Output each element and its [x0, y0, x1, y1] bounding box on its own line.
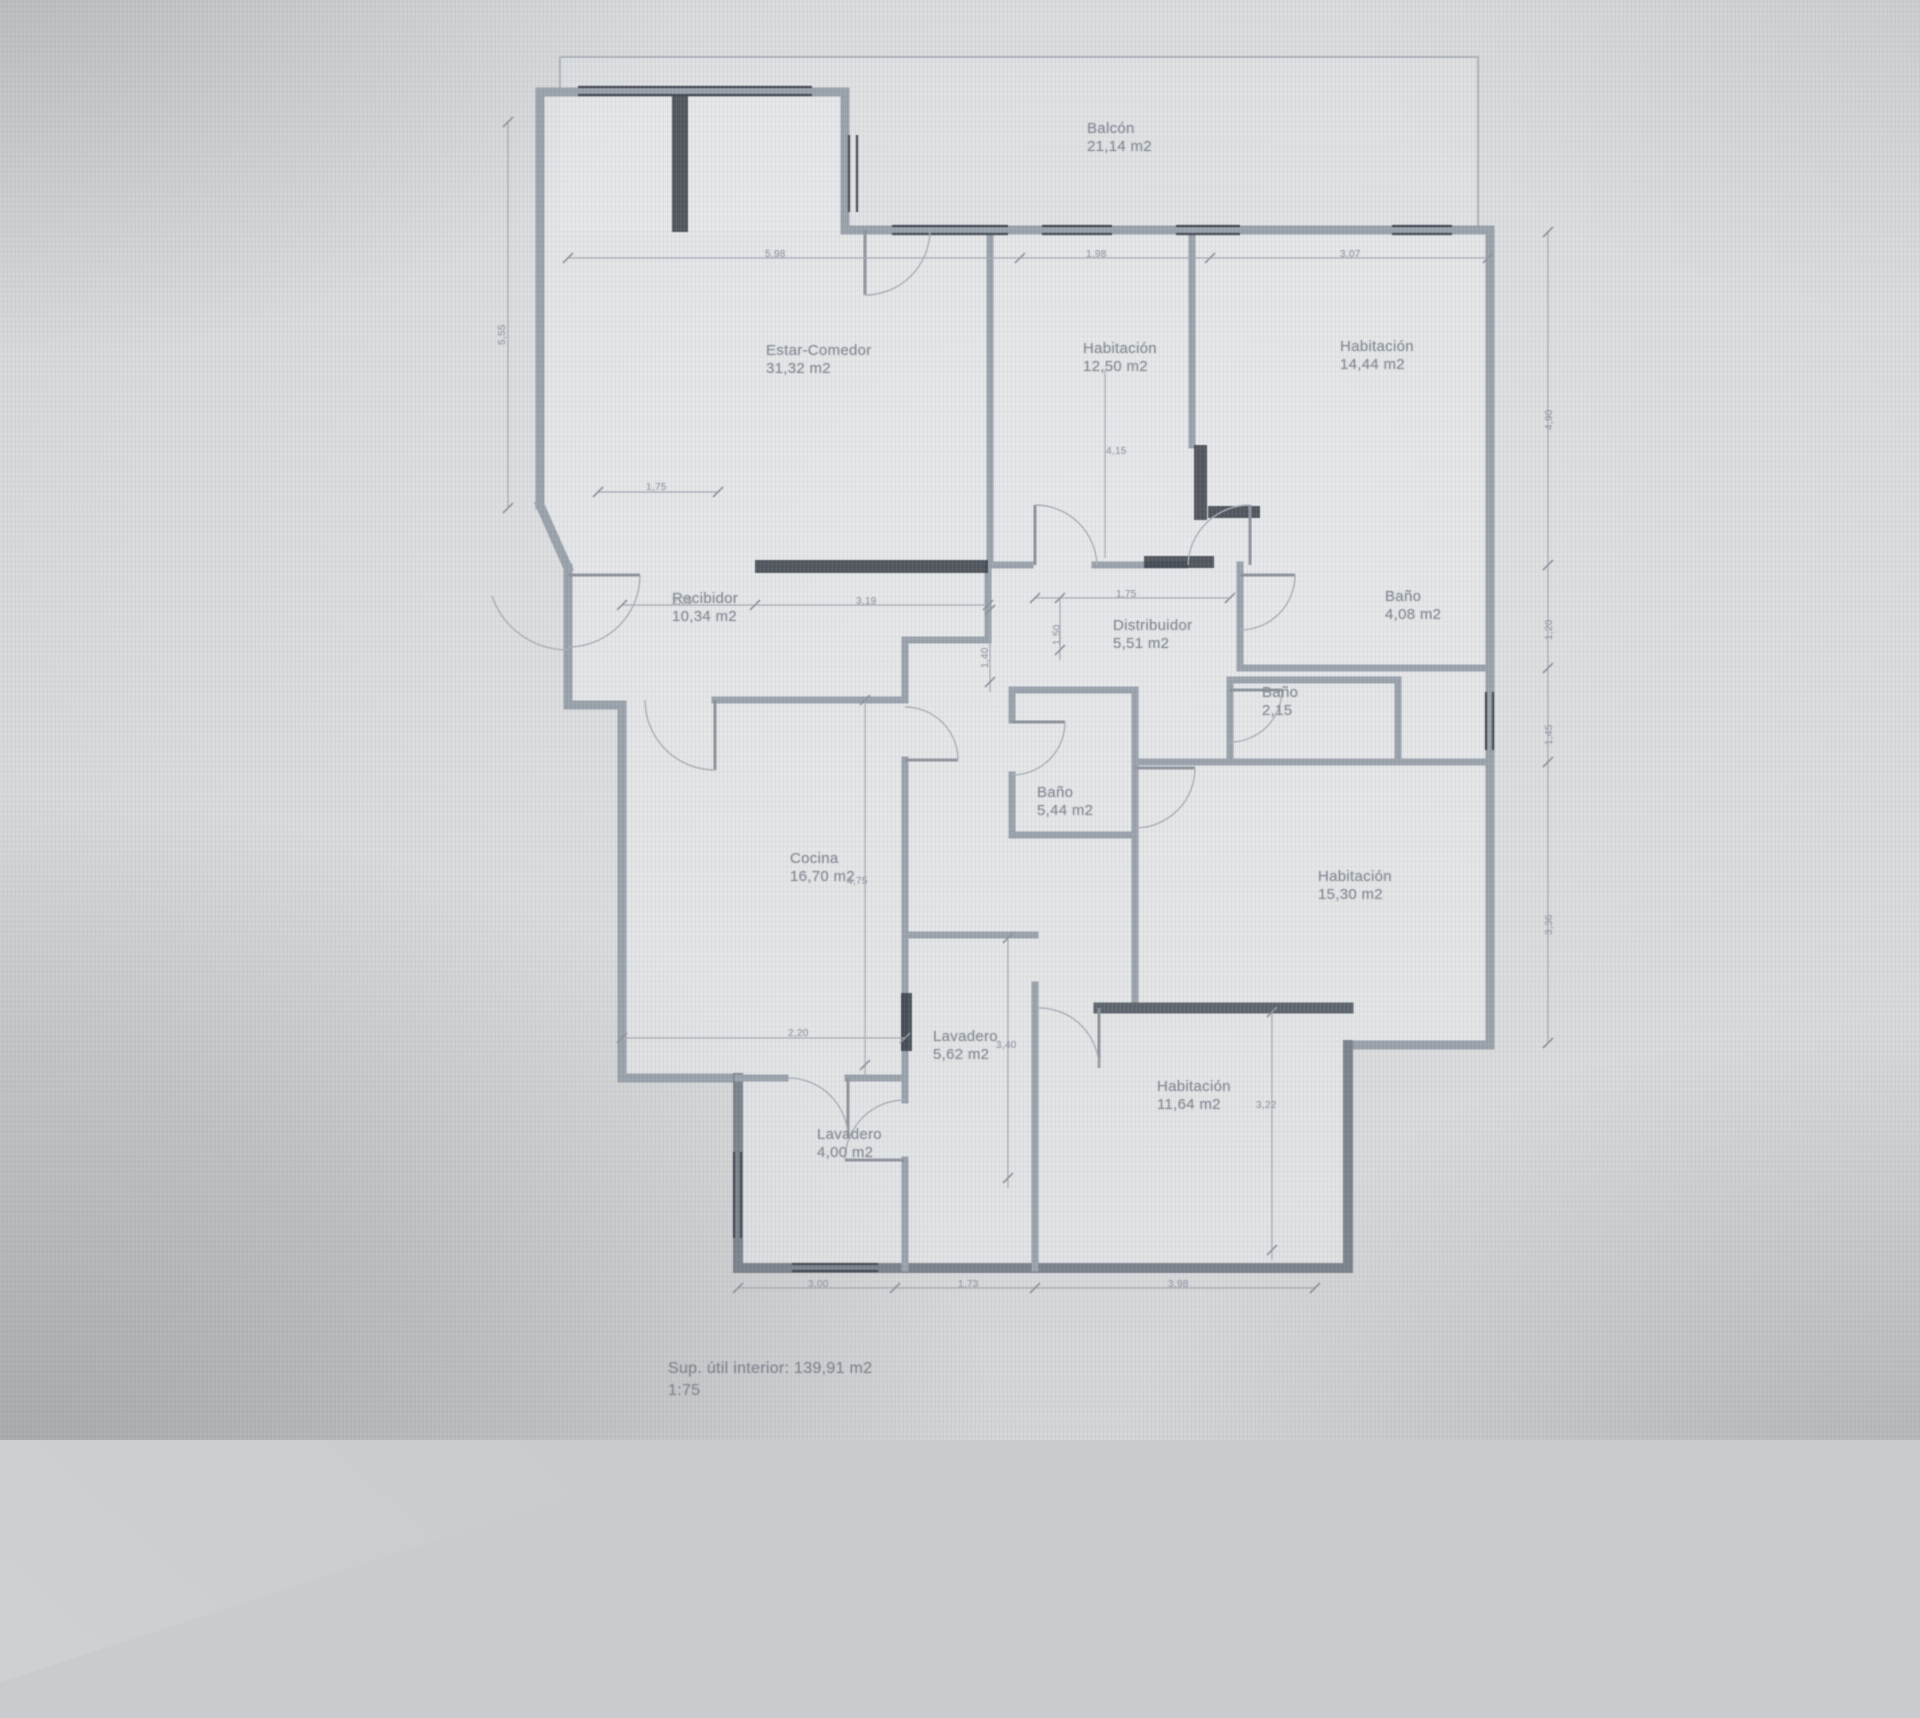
- dim-top-1: 5,98: [765, 249, 786, 260]
- room-label-lavadero-2: Lavadero 4,00 m2: [817, 1126, 882, 1163]
- screen-photo: Balcón 21,14 m2 Estar-Comedor 31,32 m2 H…: [0, 0, 1920, 1440]
- room-name: Baño: [1385, 588, 1421, 605]
- room-label-distribuidor: Distribuidor 5,51 m2: [1113, 617, 1192, 654]
- room-area: 15,30 m2: [1318, 886, 1392, 904]
- scale-label: 1:75: [668, 1380, 872, 1402]
- dim-bottom-3: 3,98: [1168, 1279, 1189, 1290]
- room-area: 5,44 m2: [1037, 802, 1093, 820]
- dim-top-3: 3,07: [1340, 249, 1361, 260]
- room-name: Balcón: [1087, 120, 1135, 137]
- room-area: 4,00 m2: [817, 1144, 882, 1162]
- room-label-habitacion-1: Habitación 12,50 m2: [1083, 340, 1157, 377]
- room-area: 2,15: [1262, 702, 1298, 720]
- dim-right-2: 1,20: [1544, 619, 1555, 640]
- room-area: 5,62 m2: [933, 1046, 998, 1064]
- dim-inner-8: 2,20: [788, 1028, 809, 1039]
- dim-right-4: 3,36: [1544, 914, 1555, 935]
- room-area: 31,32 m2: [766, 360, 872, 378]
- room-label-habitacion-4: Habitación 11,64 m2: [1157, 1078, 1231, 1115]
- dim-inner-5: 1,40: [980, 647, 991, 668]
- room-name: Distribuidor: [1113, 617, 1192, 634]
- dim-bottom-2: 1,73: [958, 1279, 979, 1290]
- floor-plan-drawing: [0, 0, 1920, 1440]
- room-name: Estar-Comedor: [766, 342, 872, 359]
- room-label-bano-3: Baño 5,44 m2: [1037, 784, 1093, 821]
- dim-bottom-1: 3,00: [808, 1279, 829, 1290]
- room-name: Baño: [1262, 684, 1298, 701]
- dim-inner-11: 4,15: [1106, 446, 1127, 457]
- dim-top-2: 1,98: [1086, 249, 1107, 260]
- dim-inner-9: 3,40: [996, 1040, 1017, 1051]
- room-label-habitacion-3: Habitación 15,30 m2: [1318, 868, 1392, 905]
- room-name: Lavadero: [817, 1126, 882, 1143]
- dim-inner-1: 1,75: [646, 482, 667, 493]
- dim-inner-7: 4,75: [847, 876, 868, 887]
- dim-inner-6: 1,50: [1052, 624, 1063, 645]
- room-area: 10,34 m2: [672, 608, 738, 626]
- room-label-habitacion-2: Habitación 14,44 m2: [1340, 338, 1414, 375]
- room-name: Habitación: [1340, 338, 1414, 355]
- area-summary: Sup. útil interior: 139,91 m2: [668, 1360, 872, 1377]
- room-label-bano-2: Baño 2,15: [1262, 684, 1298, 721]
- room-label-balcon: Balcón 21,14 m2: [1087, 120, 1152, 157]
- room-area: 14,44 m2: [1340, 356, 1414, 374]
- dim-right-1: 4,90: [1544, 409, 1555, 430]
- room-name: Baño: [1037, 784, 1073, 801]
- floor-plan: Balcón 21,14 m2 Estar-Comedor 31,32 m2 H…: [0, 0, 1920, 1440]
- dim-inner-2: 2,35: [672, 596, 693, 607]
- room-area: 11,64 m2: [1157, 1096, 1231, 1114]
- room-name: Habitación: [1157, 1078, 1231, 1095]
- room-label-estar-comedor: Estar-Comedor 31,32 m2: [766, 342, 872, 379]
- dim-inner-3: 3,19: [856, 596, 877, 607]
- room-name: Habitación: [1083, 340, 1157, 357]
- plan-summary: Sup. útil interior: 139,91 m2 1:75: [668, 1358, 872, 1401]
- room-area: 5,51 m2: [1113, 635, 1192, 653]
- dim-inner-10: 3,22: [1256, 1100, 1277, 1111]
- room-name: Habitación: [1318, 868, 1392, 885]
- room-label-lavadero-1: Lavadero 5,62 m2: [933, 1028, 998, 1065]
- room-area: 16,70 m2: [790, 868, 855, 886]
- room-area: 21,14 m2: [1087, 138, 1152, 156]
- room-name: Lavadero: [933, 1028, 998, 1045]
- room-label-bano-1: Baño 4,08 m2: [1385, 588, 1441, 625]
- room-name: Cocina: [790, 850, 839, 867]
- dim-right-3: 1,45: [1544, 724, 1555, 745]
- room-label-cocina: Cocina 16,70 m2: [790, 850, 855, 887]
- dim-left-1: 5,55: [497, 324, 508, 345]
- room-area: 4,08 m2: [1385, 606, 1441, 624]
- room-area: 12,50 m2: [1083, 358, 1157, 376]
- dim-inner-4: 1,75: [1116, 589, 1137, 600]
